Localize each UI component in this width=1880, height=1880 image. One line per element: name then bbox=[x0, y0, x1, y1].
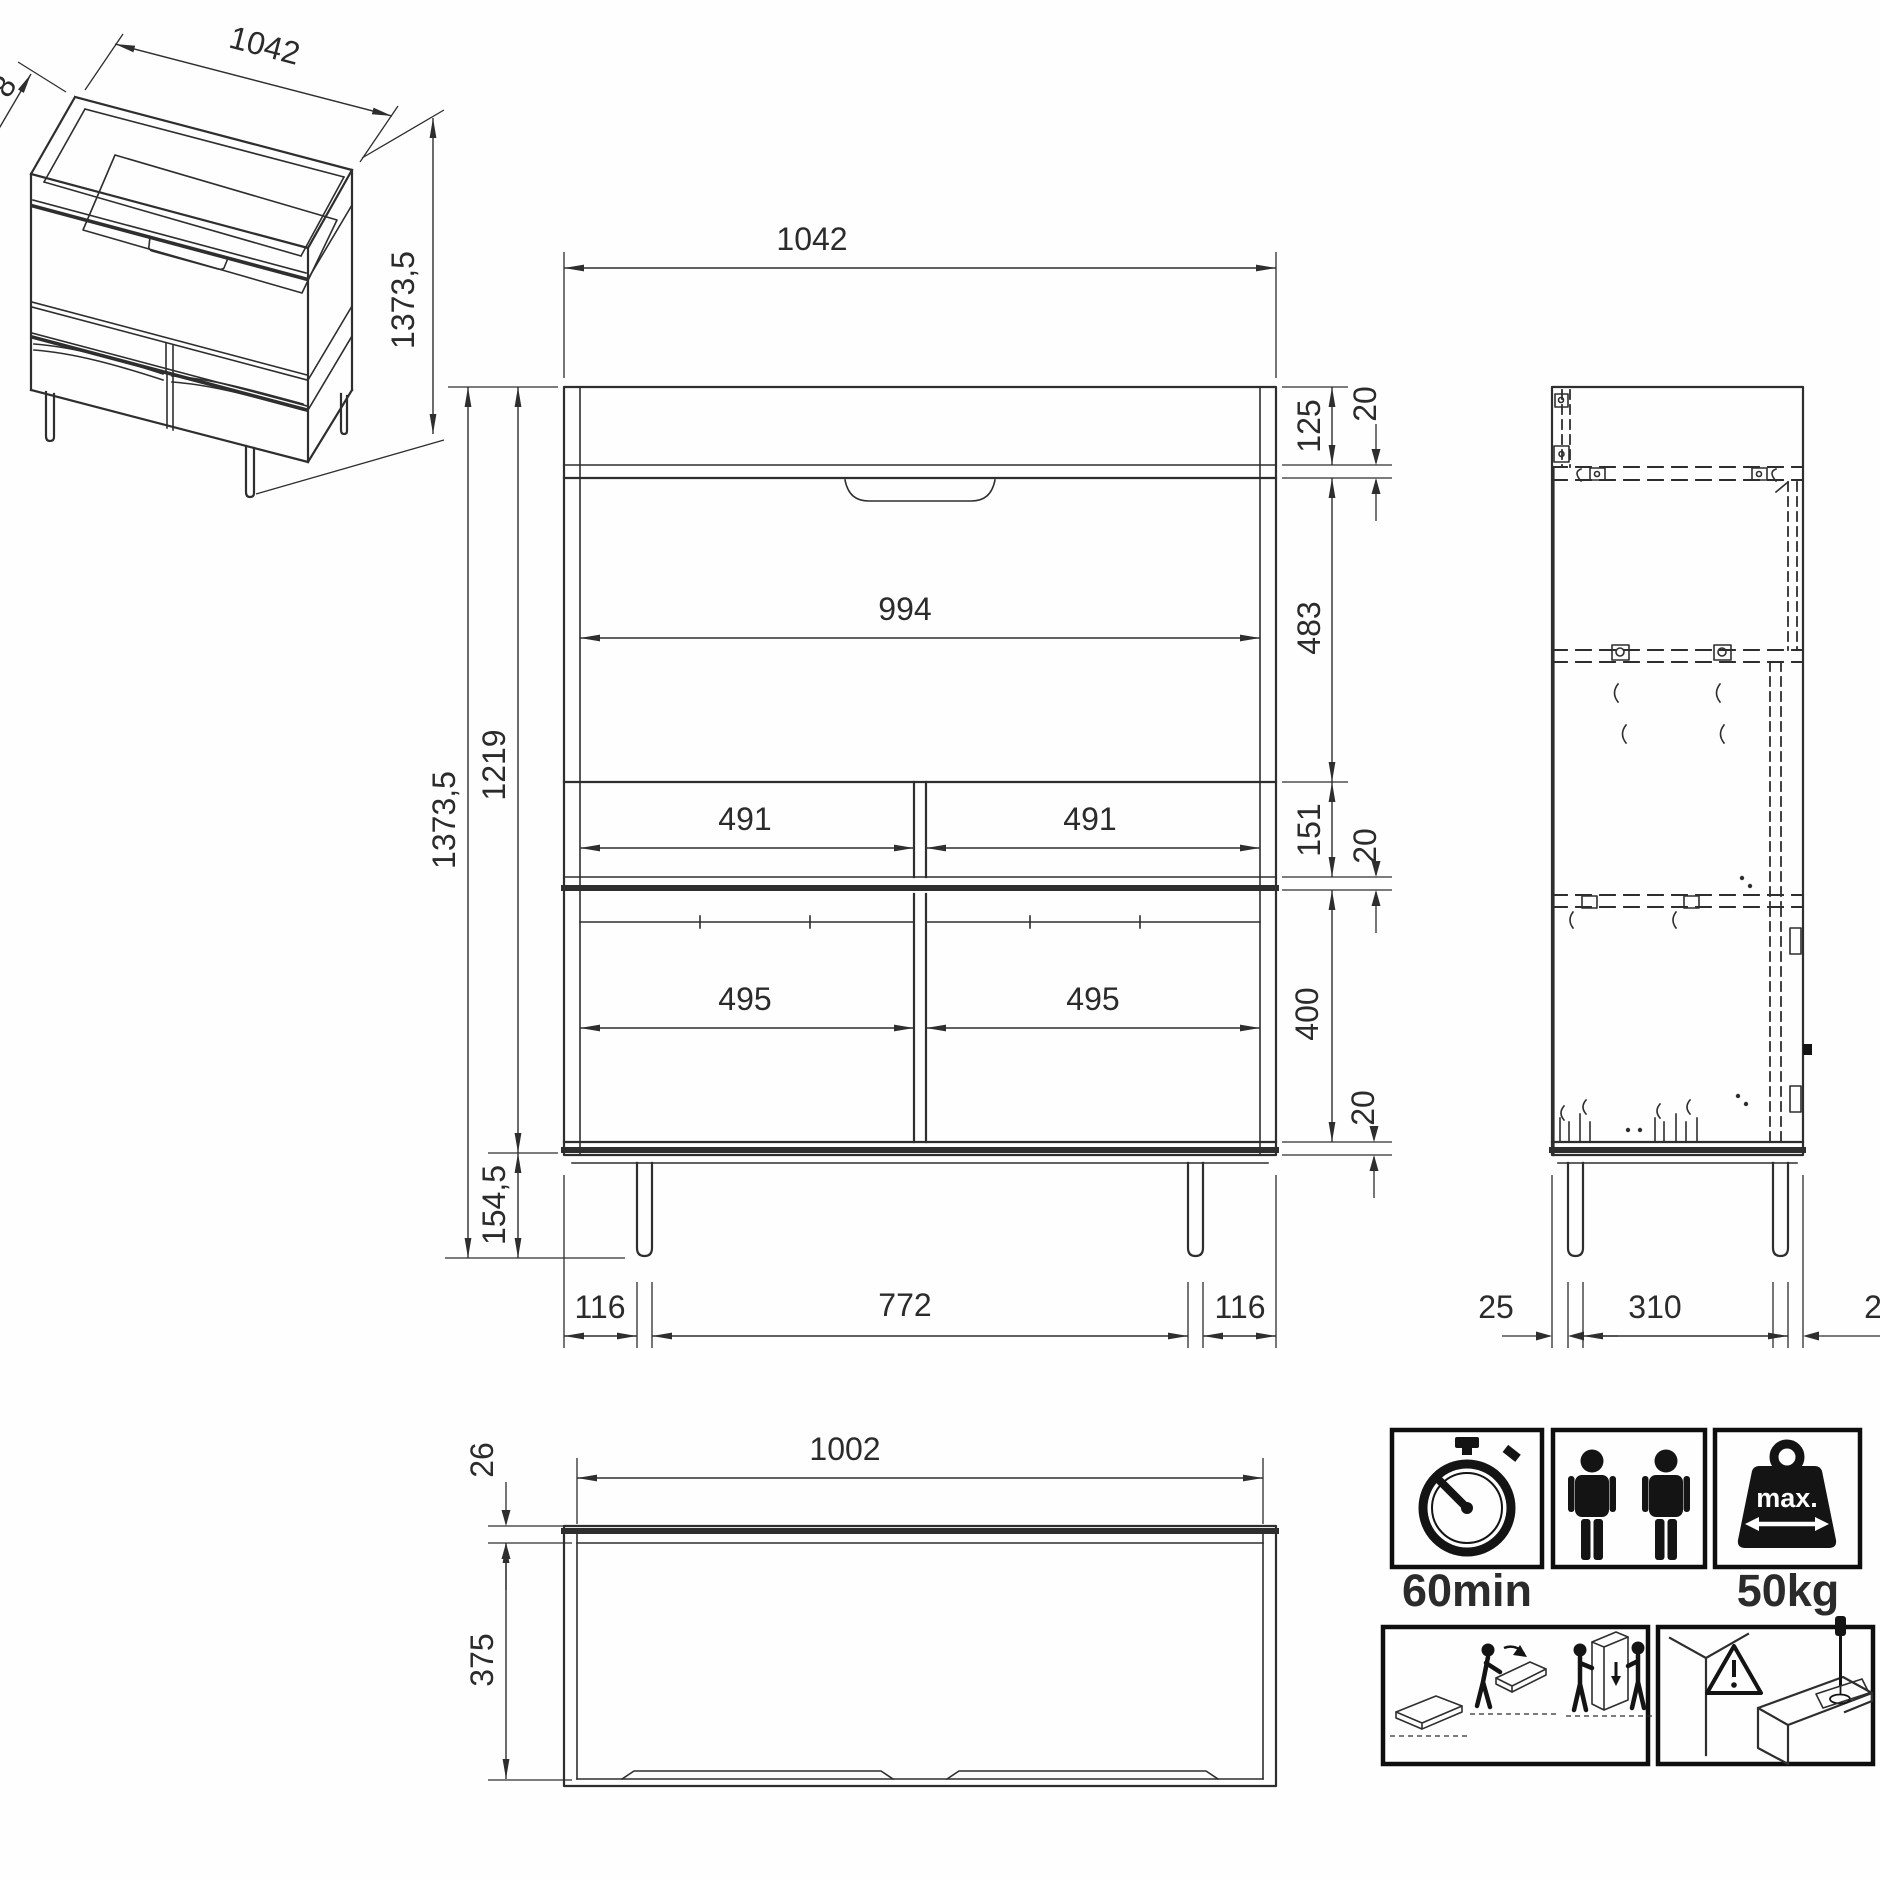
isometric-cabinet-outline bbox=[31, 97, 352, 497]
front-shelf-segment-dimension: 151 bbox=[1291, 803, 1327, 856]
front-shelf-left-dimension: 491 bbox=[718, 801, 771, 837]
screwdriver-icon bbox=[1816, 1616, 1869, 1708]
front-view: 1042 994 491 491 495 495 1373,5 1219 154… bbox=[426, 221, 1392, 1348]
front-shelf-right-dimension: 491 bbox=[1063, 801, 1116, 837]
iso-leg-front-right bbox=[246, 446, 254, 497]
front-thickness-bottom: 20 bbox=[1345, 1090, 1381, 1198]
front-thickness-top: 20 bbox=[1347, 386, 1383, 521]
front-dimensions: 1042 994 491 491 495 495 1373,5 1219 154… bbox=[426, 221, 1392, 1348]
iso-leg-front-left bbox=[46, 392, 54, 441]
top-depth-dimension: 375 bbox=[464, 1633, 500, 1686]
side-hidden-mid-shelf bbox=[1552, 650, 1803, 662]
side-hidden-flap bbox=[1788, 482, 1797, 650]
side-leg-back bbox=[1773, 1163, 1788, 1256]
svg-text:20: 20 bbox=[1347, 828, 1383, 864]
top-cabinet-outline bbox=[564, 1526, 1276, 1786]
desk-corner-drawing bbox=[1758, 1677, 1872, 1764]
carry-upright-step-icon bbox=[1566, 1632, 1652, 1716]
time-badge-label: 60min bbox=[1402, 1565, 1532, 1616]
top-width-dimension: 1002 bbox=[809, 1431, 880, 1467]
side-leg-front bbox=[1568, 1163, 1583, 1256]
isometric-view: 1042 1373,5 8 bbox=[0, 19, 444, 497]
front-total-height-dimension: 1373,5 bbox=[426, 771, 462, 869]
caution-pictogram bbox=[1658, 1616, 1873, 1764]
iso-depth-dimension-partial: 8 bbox=[0, 69, 24, 103]
side-hinge-lower bbox=[1790, 1086, 1801, 1112]
front-flap-segment-dimension: 483 bbox=[1291, 601, 1327, 654]
top-dimensions: 26 375 1002 bbox=[464, 1431, 1263, 1780]
assembly-pictogram bbox=[1383, 1627, 1652, 1764]
front-foot-right-dimension: 116 bbox=[1214, 1289, 1265, 1325]
front-cabinet-outline bbox=[564, 387, 1276, 1256]
top-back-thickness-dimension: 26 bbox=[464, 1442, 500, 1478]
stopwatch-icon bbox=[1423, 1437, 1521, 1552]
side-dimensions: 25 310 2 bbox=[1478, 1175, 1880, 1348]
side-cabinet-outline bbox=[1552, 387, 1812, 1256]
front-inner-width-dimension: 994 bbox=[878, 591, 931, 627]
iso-leg-back-right bbox=[341, 394, 347, 434]
top-handle-recess-right bbox=[947, 1771, 1218, 1779]
tilt-package-step-icon bbox=[1470, 1644, 1556, 1715]
svg-text:20: 20 bbox=[1345, 1090, 1381, 1126]
side-front-inset-dimension: 25 bbox=[1478, 1289, 1514, 1325]
side-leg-span-dimension: 310 bbox=[1628, 1289, 1681, 1325]
weight-max-label: max. bbox=[1756, 1483, 1818, 1513]
top-view: 26 375 1002 bbox=[464, 1431, 1276, 1786]
front-foot-left-dimension: 116 bbox=[574, 1289, 625, 1325]
persons-badge bbox=[1553, 1430, 1705, 1567]
side-view: 25 310 2 bbox=[1478, 387, 1880, 1348]
two-persons-icon bbox=[1568, 1450, 1690, 1561]
front-door-right-dimension: 495 bbox=[1066, 981, 1119, 1017]
svg-text:20: 20 bbox=[1347, 386, 1383, 422]
front-door-segment-dimension: 400 bbox=[1289, 987, 1325, 1040]
side-hinge-upper bbox=[1790, 928, 1801, 954]
front-body-height-dimension: 1219 bbox=[476, 729, 512, 800]
front-width-top-dimension: 1042 bbox=[776, 221, 847, 257]
top-handle-recess-left bbox=[622, 1771, 893, 1779]
iso-height-dimension: 1373,5 bbox=[385, 251, 421, 349]
front-door-left-dimension: 495 bbox=[718, 981, 771, 1017]
front-shelf-divider bbox=[914, 782, 926, 877]
front-leg-left bbox=[637, 1163, 652, 1256]
package-flat-icon bbox=[1390, 1696, 1468, 1736]
drawing-canvas: 1042 1373,5 8 bbox=[0, 0, 1880, 1880]
iso-width-dimension: 1042 bbox=[226, 19, 304, 72]
weight-badge-label: 50kg bbox=[1737, 1565, 1840, 1616]
front-crown-segment-dimension: 125 bbox=[1291, 399, 1327, 452]
side-back-inset-dimension-partial: 2 bbox=[1864, 1289, 1880, 1325]
front-foot-span-dimension: 772 bbox=[878, 1287, 931, 1323]
technical-drawing-page: 1042 1373,5 8 bbox=[0, 0, 1880, 1880]
front-flap-handle-recess bbox=[845, 480, 995, 501]
front-leg-right bbox=[1188, 1163, 1203, 1256]
front-thickness-mid: 20 bbox=[1347, 828, 1383, 933]
front-leg-height-dimension: 154,5 bbox=[476, 1165, 512, 1245]
side-handle-tab bbox=[1803, 1044, 1812, 1055]
weight-icon: max. bbox=[1738, 1444, 1836, 1548]
time-badge: 60min bbox=[1392, 1430, 1542, 1616]
badges: 60min bbox=[1383, 1430, 1873, 1764]
max-weight-badge: max. 50kg bbox=[1715, 1430, 1860, 1616]
